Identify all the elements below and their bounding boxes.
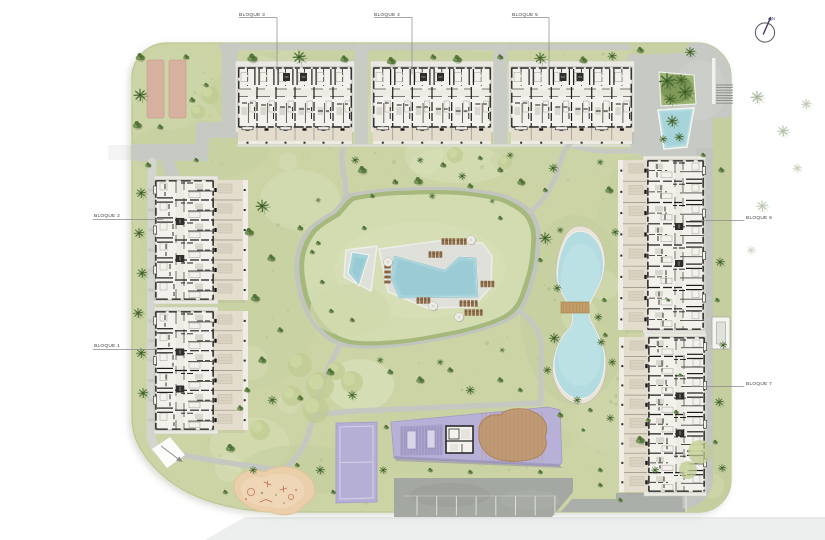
svg-text:BLOQUE 5: BLOQUE 5	[512, 12, 538, 18]
svg-text:BLOQUE 7: BLOQUE 7	[746, 381, 772, 387]
svg-text:BLOQUE 3: BLOQUE 3	[239, 12, 265, 18]
svg-text:BLOQUE 2: BLOQUE 2	[94, 213, 120, 219]
svg-text:BLOQUE 4: BLOQUE 4	[374, 12, 400, 18]
svg-text:N: N	[772, 16, 776, 21]
svg-text:BLOQUE 6: BLOQUE 6	[746, 215, 772, 221]
svg-text:BLOQUE 1: BLOQUE 1	[94, 343, 120, 349]
